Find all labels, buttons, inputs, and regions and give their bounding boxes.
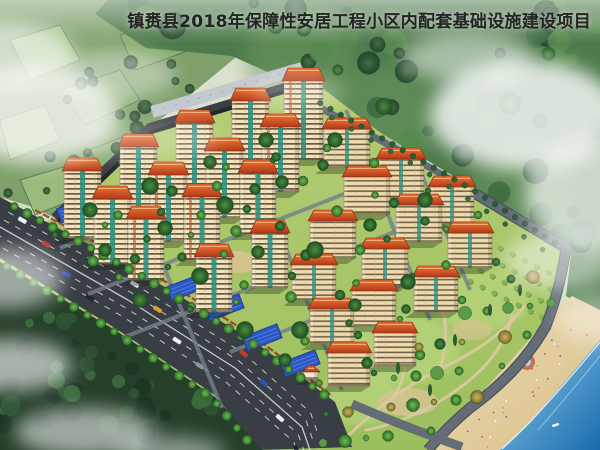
tree — [362, 358, 373, 369]
tree — [415, 343, 423, 351]
tree — [242, 435, 252, 445]
architectural-rendering: 镇赉县2018年保障性安居工程小区内配套基础设施建设项目 — [0, 0, 600, 450]
tree — [52, 232, 59, 239]
tree — [83, 203, 98, 218]
tree — [402, 305, 411, 314]
tree — [458, 306, 471, 319]
tree — [383, 431, 394, 442]
tree — [142, 178, 159, 195]
mist-cloud — [253, 76, 343, 108]
tree — [470, 390, 483, 403]
tree — [148, 353, 158, 363]
tree — [323, 411, 329, 417]
tree — [354, 331, 362, 339]
tree — [36, 216, 44, 224]
tree — [522, 221, 528, 227]
tree — [348, 118, 354, 124]
tree — [272, 153, 281, 162]
tree — [527, 303, 533, 309]
tree — [136, 345, 144, 353]
tree — [427, 427, 435, 435]
tree — [492, 258, 500, 266]
tree — [415, 350, 425, 360]
tree — [435, 339, 446, 350]
tree — [163, 287, 171, 295]
tree — [484, 209, 489, 214]
tree — [343, 407, 354, 418]
tree — [237, 322, 254, 339]
tree — [319, 390, 329, 400]
tree — [446, 184, 451, 189]
tree — [369, 130, 375, 136]
tree — [462, 183, 468, 189]
tree — [318, 160, 329, 171]
tree — [353, 280, 360, 287]
tree — [259, 133, 274, 148]
tree — [410, 153, 416, 159]
tree — [149, 279, 159, 289]
tree — [243, 205, 251, 213]
tree — [319, 439, 327, 447]
tree — [188, 381, 196, 389]
tree — [212, 317, 220, 325]
tree — [174, 294, 184, 304]
tree — [498, 330, 511, 343]
tree — [503, 222, 508, 227]
tree — [455, 367, 463, 375]
tree — [442, 261, 451, 270]
tree — [371, 370, 377, 376]
tree — [346, 320, 353, 327]
tree — [308, 382, 316, 390]
tree — [22, 208, 32, 218]
tree — [363, 435, 369, 441]
tree — [112, 258, 120, 266]
tree — [443, 226, 449, 232]
tree — [48, 222, 58, 232]
tree — [492, 201, 498, 207]
tree — [61, 230, 69, 238]
tree — [431, 165, 437, 171]
tree — [87, 244, 95, 252]
tree — [222, 411, 232, 421]
tree — [316, 380, 323, 387]
mist-cloud — [80, 120, 220, 160]
tree — [130, 254, 140, 264]
tree — [248, 339, 258, 349]
tree — [261, 348, 269, 356]
tree — [233, 424, 241, 432]
tree — [391, 375, 397, 381]
tree — [359, 124, 365, 130]
tree — [217, 197, 234, 214]
tree — [328, 106, 334, 112]
tree — [96, 318, 106, 328]
tree — [10, 202, 18, 210]
tree — [472, 189, 478, 195]
tree — [102, 222, 108, 228]
tree — [240, 281, 249, 290]
tree — [88, 256, 99, 267]
tree — [329, 115, 334, 120]
tree — [157, 208, 165, 216]
tree — [364, 219, 377, 232]
tree — [406, 398, 419, 411]
tree — [418, 193, 433, 208]
tree — [69, 302, 79, 312]
tree — [390, 141, 396, 147]
mist-cloud — [55, 49, 175, 101]
tree — [387, 403, 395, 411]
tree — [459, 339, 465, 345]
tree — [338, 434, 351, 447]
mist-cloud — [403, 32, 533, 84]
tree — [200, 388, 210, 398]
tree — [231, 226, 242, 237]
tree — [288, 272, 296, 280]
tree — [349, 126, 354, 131]
tree — [212, 181, 222, 191]
tree — [408, 160, 413, 165]
tree — [116, 274, 123, 281]
tree — [138, 272, 146, 280]
tree — [192, 268, 209, 285]
tree — [250, 184, 261, 195]
tree — [276, 176, 289, 189]
tree — [99, 244, 112, 257]
tree — [296, 373, 306, 383]
tree — [286, 292, 297, 303]
tree — [199, 309, 209, 319]
tree — [224, 324, 234, 334]
tree — [114, 211, 123, 220]
tree — [110, 327, 118, 335]
tree — [338, 112, 344, 118]
tree — [233, 299, 239, 305]
tree — [204, 156, 217, 169]
tree — [220, 250, 228, 258]
tree — [421, 159, 427, 165]
tree — [502, 208, 508, 214]
tree — [400, 147, 406, 153]
tree — [397, 316, 403, 322]
tree — [165, 264, 171, 270]
tree — [389, 198, 399, 208]
tree — [474, 211, 482, 219]
tree — [188, 232, 194, 238]
tree — [122, 335, 132, 345]
tree — [369, 158, 379, 168]
tree — [124, 264, 134, 274]
tree — [465, 196, 470, 201]
tree — [275, 221, 285, 231]
tree — [335, 290, 345, 300]
tree — [162, 363, 170, 371]
tree — [158, 221, 173, 236]
tree — [384, 236, 391, 243]
scene-svg — [0, 0, 600, 450]
tree — [56, 295, 64, 303]
tree — [427, 172, 432, 177]
tree — [133, 293, 148, 308]
tree — [298, 176, 308, 186]
tree — [213, 400, 221, 408]
tree — [144, 236, 151, 243]
tree — [458, 296, 466, 304]
tree — [349, 299, 362, 312]
tree — [379, 136, 385, 142]
tree — [523, 331, 531, 339]
tree — [355, 245, 365, 255]
tree — [451, 395, 462, 406]
tree — [452, 177, 458, 183]
tree — [197, 211, 206, 220]
tree — [167, 186, 178, 197]
tree — [482, 195, 488, 201]
tree — [252, 246, 265, 259]
tree — [372, 192, 379, 199]
tree — [369, 138, 374, 143]
tree — [73, 236, 83, 246]
project-title: 镇赉县2018年保障性安居工程小区内配套基础设施建设项目 — [127, 7, 591, 32]
tree — [421, 217, 430, 226]
tree — [512, 214, 518, 220]
tree — [328, 133, 343, 148]
tree — [83, 311, 91, 319]
tree — [411, 371, 422, 382]
tree — [178, 253, 187, 262]
tree — [401, 275, 416, 290]
tree — [292, 322, 309, 339]
tree — [441, 171, 447, 177]
tree — [532, 227, 538, 233]
tree — [430, 366, 443, 379]
tree — [431, 399, 437, 405]
tree — [187, 306, 194, 313]
tree — [388, 149, 393, 154]
tree — [307, 242, 324, 259]
tree — [503, 303, 514, 314]
tree — [332, 206, 343, 217]
tree — [499, 363, 505, 369]
tree — [223, 164, 230, 171]
tree — [547, 299, 555, 307]
tree — [174, 371, 184, 381]
tree — [279, 354, 292, 367]
